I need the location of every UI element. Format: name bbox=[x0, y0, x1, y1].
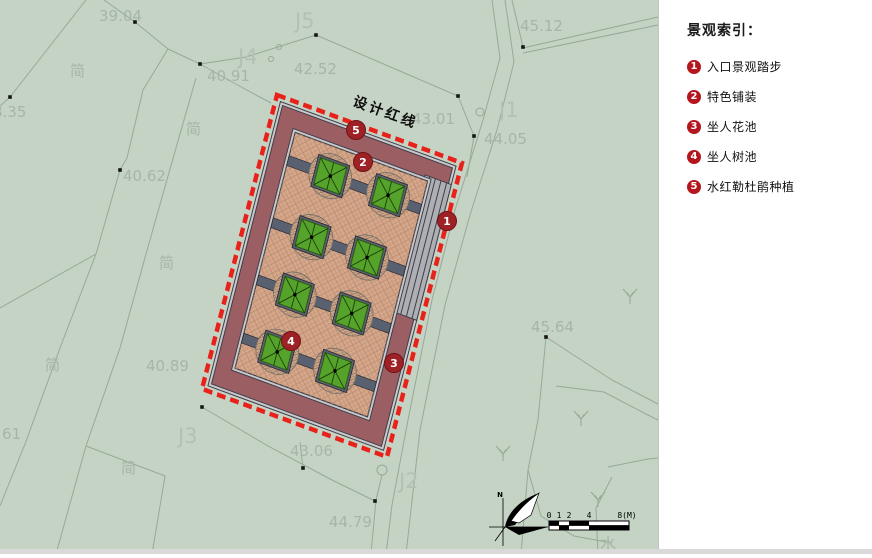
plan-marker-number: 2 bbox=[359, 156, 367, 169]
map-label: 43.06 bbox=[290, 442, 333, 460]
legend-number-badge: 3 bbox=[687, 120, 701, 134]
survey-point bbox=[456, 94, 460, 98]
survey-point bbox=[314, 33, 318, 37]
survey-point bbox=[373, 499, 377, 503]
plan-marker-1: 1 bbox=[438, 212, 457, 231]
map-label: 39.04 bbox=[99, 7, 142, 25]
map-label: 42.52 bbox=[294, 60, 337, 78]
survey-point bbox=[8, 95, 12, 99]
scale-tick: 4 bbox=[587, 511, 592, 520]
survey-point bbox=[472, 134, 476, 138]
legend-items: 1入口景观踏步2特色铺装3坐人花池4坐人树池5水红勒杜鹃种植 bbox=[687, 58, 862, 195]
legend-title: 景观索引： bbox=[687, 20, 862, 40]
legend-number-badge: 1 bbox=[687, 60, 701, 74]
map-label: 40.62 bbox=[123, 167, 166, 185]
map-label: 44.79 bbox=[329, 513, 372, 531]
site-plan-area: 39.04J5J442.5240.9145.12J143.0144.058.35… bbox=[0, 0, 658, 554]
scale-tick: 2 bbox=[567, 511, 572, 520]
map-label: J2 bbox=[397, 469, 419, 493]
legend-item: 1入口景观踏步 bbox=[687, 58, 862, 75]
map-label: J5 bbox=[293, 9, 315, 33]
map-label: J3 bbox=[176, 424, 198, 448]
survey-point bbox=[118, 168, 122, 172]
legend-number-badge: 4 bbox=[687, 150, 701, 164]
map-label: 简 bbox=[70, 62, 85, 80]
scale-tick: 1 bbox=[557, 511, 562, 520]
survey-point bbox=[198, 62, 202, 66]
map-label: J4 bbox=[236, 45, 258, 69]
map-label: 简 bbox=[121, 459, 136, 477]
legend-item-label: 特色铺装 bbox=[707, 88, 757, 105]
legend-item-label: 水红勒杜鹃种植 bbox=[707, 178, 795, 195]
legend-item: 3坐人花池 bbox=[687, 118, 862, 135]
map-label: J1 bbox=[497, 98, 519, 122]
survey-point bbox=[301, 466, 305, 470]
plan-marker-3: 3 bbox=[385, 354, 404, 373]
scale-tick: 8(M) bbox=[617, 511, 636, 520]
plan-marker-number: 4 bbox=[287, 335, 295, 348]
plan-marker-2: 2 bbox=[354, 153, 373, 172]
survey-point bbox=[521, 45, 525, 49]
map-label: 61 bbox=[2, 425, 21, 443]
map-label: 40.89 bbox=[146, 357, 189, 375]
legend-item-label: 坐人树池 bbox=[707, 148, 757, 165]
plan-marker-4: 4 bbox=[282, 332, 301, 351]
map-label: 45.12 bbox=[520, 17, 563, 35]
map-label: 简 bbox=[45, 356, 60, 374]
legend-number-badge: 2 bbox=[687, 90, 701, 104]
plan-marker-number: 1 bbox=[443, 215, 451, 228]
map-label: 简 bbox=[186, 120, 201, 138]
map-label: 40.91 bbox=[207, 67, 250, 85]
map-label: 45.64 bbox=[531, 318, 574, 336]
scale-tick: 0 bbox=[547, 511, 552, 520]
page-bottom-edge bbox=[0, 549, 872, 554]
legend-item-label: 坐人花池 bbox=[707, 118, 757, 135]
legend-item-label: 入口景观踏步 bbox=[707, 58, 782, 75]
legend-item: 5水红勒杜鹃种植 bbox=[687, 178, 862, 195]
legend-item: 2特色铺装 bbox=[687, 88, 862, 105]
map-label: 8.35 bbox=[0, 103, 26, 121]
site-plan-map: 39.04J5J442.5240.9145.12J143.0144.058.35… bbox=[0, 0, 658, 554]
plan-marker-number: 5 bbox=[352, 124, 360, 137]
legend-number-badge: 5 bbox=[687, 180, 701, 194]
legend-item: 4坐人树池 bbox=[687, 148, 862, 165]
north-label: N bbox=[497, 491, 503, 499]
plan-marker-5: 5 bbox=[347, 121, 366, 140]
plan-marker-number: 3 bbox=[390, 357, 398, 370]
legend-panel: 景观索引： 1入口景观踏步2特色铺装3坐人花池4坐人树池5水红勒杜鹃种植 bbox=[658, 0, 872, 554]
map-label: 44.05 bbox=[484, 130, 527, 148]
survey-point bbox=[200, 405, 204, 409]
map-label: 简 bbox=[159, 254, 174, 272]
